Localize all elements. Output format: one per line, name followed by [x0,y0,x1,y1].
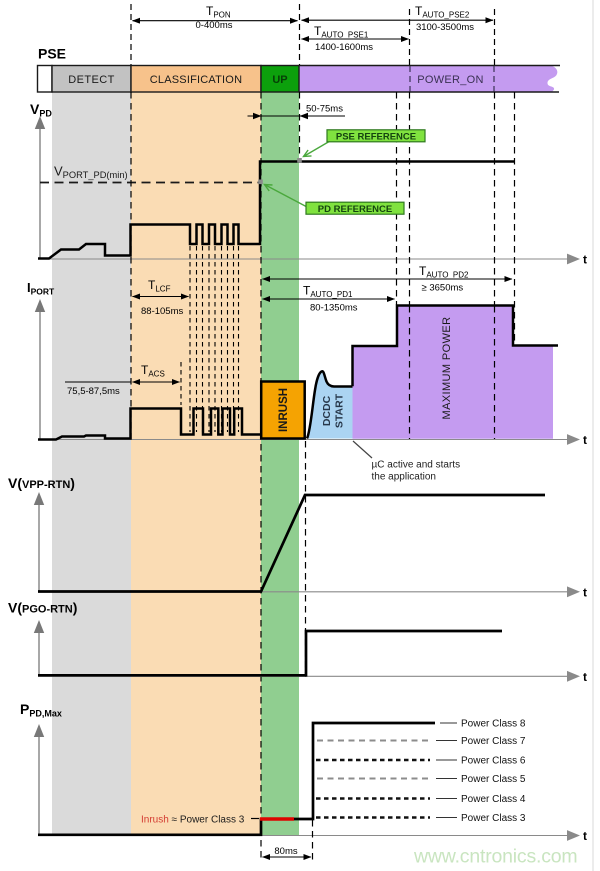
svg-text:IPORT: IPORT [27,280,55,297]
svg-text:TAUTO_PSE2: TAUTO_PSE2 [415,4,470,20]
svg-text:TAUTO_PD2: TAUTO_PD2 [419,264,469,280]
svg-text:µC active and starts: µC active and starts [372,460,461,471]
svg-text:the application: the application [372,472,437,483]
svg-text:DETECT: DETECT [68,74,114,86]
svg-text:Inrush ≈ Power Class 3: Inrush ≈ Power Class 3 [141,815,245,826]
svg-text:t: t [583,433,587,447]
svg-text:TAUTO_PSE1: TAUTO_PSE1 [314,24,369,40]
svg-text:INRUSH: INRUSH [278,388,290,432]
svg-text:t: t [583,586,587,600]
svg-text:1400-1600ms: 1400-1600ms [315,42,373,53]
svg-text:PD REFERENCE: PD REFERENCE [318,204,392,215]
svg-text:88-105ms: 88-105ms [141,306,183,317]
svg-text:Power Class 7: Power Class 7 [461,736,526,747]
svg-text:Power Class 5: Power Class 5 [461,774,526,785]
svg-text:Power Class 8: Power Class 8 [461,719,526,730]
svg-text:Power Class 3: Power Class 3 [461,813,526,824]
svg-text:DCDC: DCDC [321,395,333,426]
svg-text:0-400ms: 0-400ms [196,20,233,31]
svg-text:≥ 3650ms: ≥ 3650ms [422,283,464,294]
svg-text:START: START [334,393,346,428]
svg-text:75,5-87,5ms: 75,5-87,5ms [67,386,120,397]
svg-text:3100-3500ms: 3100-3500ms [416,22,474,33]
svg-text:POWER_ON: POWER_ON [417,74,484,86]
svg-text:80ms: 80ms [274,846,297,857]
svg-text:t: t [583,670,587,684]
svg-text:Power Class 6: Power Class 6 [461,756,526,767]
svg-text:t: t [583,253,587,267]
svg-text:VPD: VPD [30,101,52,119]
svg-text:t: t [583,829,587,843]
svg-text:TPON: TPON [206,4,231,20]
svg-text:UP: UP [272,74,287,86]
svg-text:www.cntronics.com: www.cntronics.com [413,846,577,868]
svg-text:TAUTO_PD1: TAUTO_PD1 [303,284,353,300]
svg-text:CLASSIFICATION: CLASSIFICATION [150,74,242,86]
svg-text:50-75ms: 50-75ms [306,104,343,115]
svg-text:MAXIMUM POWER: MAXIMUM POWER [441,317,453,420]
svg-text:PSE: PSE [38,46,66,62]
svg-text:PSE REFERENCE: PSE REFERENCE [336,132,416,143]
svg-text:80-1350ms: 80-1350ms [310,303,358,314]
svg-text:Power Class 4: Power Class 4 [461,794,526,805]
